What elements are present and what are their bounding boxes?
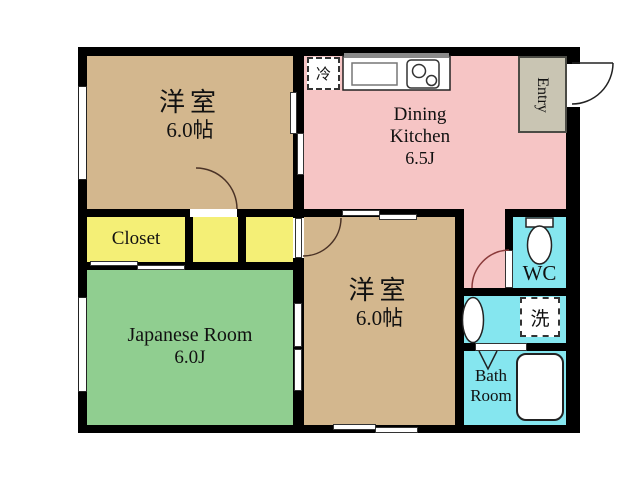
door-bathroom [475, 343, 527, 351]
sliding-door-dk-room-panel1 [342, 210, 380, 216]
wall-outer-bottom [78, 425, 580, 433]
sliding-door-closet-panel1 [90, 261, 138, 266]
window-western-top-left [78, 86, 87, 180]
window-bottom-panel1 [333, 424, 376, 430]
western-room-top-area [87, 56, 293, 209]
washing-machine-icon: 洗 [520, 297, 560, 337]
wall-washroom-top [455, 288, 568, 296]
entry-area [518, 56, 567, 133]
door-leaf-closet3 [295, 218, 302, 258]
sliding-door-japanese-panel1 [294, 303, 302, 347]
sliding-door-kitchen-panel1 [290, 92, 297, 134]
closet3-area [246, 217, 293, 262]
wall-right-column [455, 217, 464, 425]
sliding-door-kitchen-panel2 [297, 133, 304, 175]
door-leaf-wc [505, 250, 513, 288]
refrigerator-label: 冷 [316, 63, 331, 84]
sliding-door-dk-room-panel2 [379, 214, 417, 220]
wc-area [513, 217, 566, 288]
sliding-door-closet-panel2 [137, 265, 185, 270]
western-room-bottom-area [304, 217, 455, 425]
wall-outer-top [78, 47, 580, 56]
japanese-room-area [87, 270, 293, 425]
hallway-stub-area [464, 209, 505, 288]
laundry-label: 洗 [530, 304, 549, 331]
wall-wc-top [505, 209, 568, 217]
window-bottom-panel2 [375, 427, 418, 433]
window-japanese-left [78, 297, 87, 392]
closet-area [87, 217, 185, 262]
wall-closet-div1 [185, 217, 193, 262]
bathroom-area [464, 351, 566, 425]
wall-closet-div2 [238, 217, 246, 262]
door-opening-western-top [190, 209, 237, 217]
sliding-door-japanese-panel2 [294, 349, 302, 391]
floorplan: 冷 洗 [0, 0, 640, 480]
refrigerator-icon: 冷 [307, 57, 340, 90]
closet2-area [193, 217, 238, 262]
door-opening-entry [566, 64, 580, 107]
